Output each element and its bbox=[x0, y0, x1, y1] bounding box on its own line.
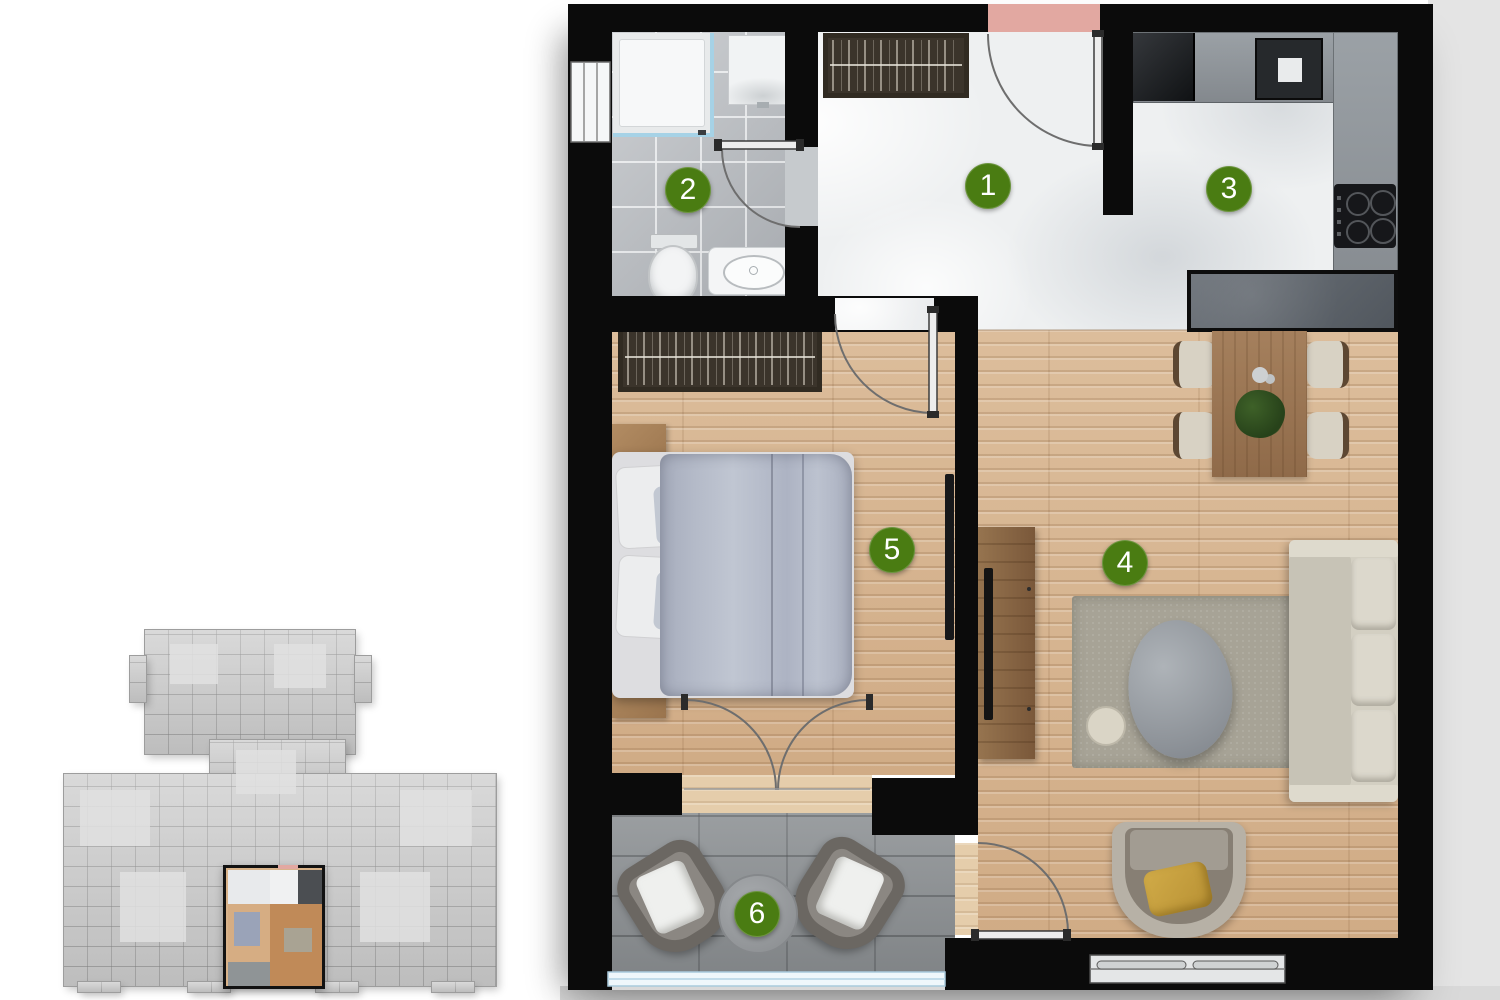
room-marker-bathroom: 2 bbox=[665, 167, 711, 213]
floor-plan-page: 1 2 3 4 5 6 bbox=[0, 0, 1500, 1000]
bathroom-window bbox=[571, 62, 610, 142]
entry-door bbox=[988, 30, 1104, 150]
balcony-door bbox=[971, 843, 1071, 941]
room-marker-bedroom: 5 bbox=[869, 527, 915, 573]
doors-windows-overlay bbox=[0, 0, 1500, 1000]
bedroom-door bbox=[835, 306, 939, 418]
glass-balustrade bbox=[608, 972, 945, 986]
room-marker-balcony: 6 bbox=[734, 891, 780, 937]
room-marker-kitchen: 3 bbox=[1206, 166, 1252, 212]
room-marker-living-room: 4 bbox=[1102, 540, 1148, 586]
french-doors bbox=[681, 694, 873, 790]
room-marker-entrance-hall: 1 bbox=[965, 163, 1011, 209]
bathroom-door bbox=[714, 139, 804, 227]
living-room-window bbox=[1090, 955, 1285, 983]
